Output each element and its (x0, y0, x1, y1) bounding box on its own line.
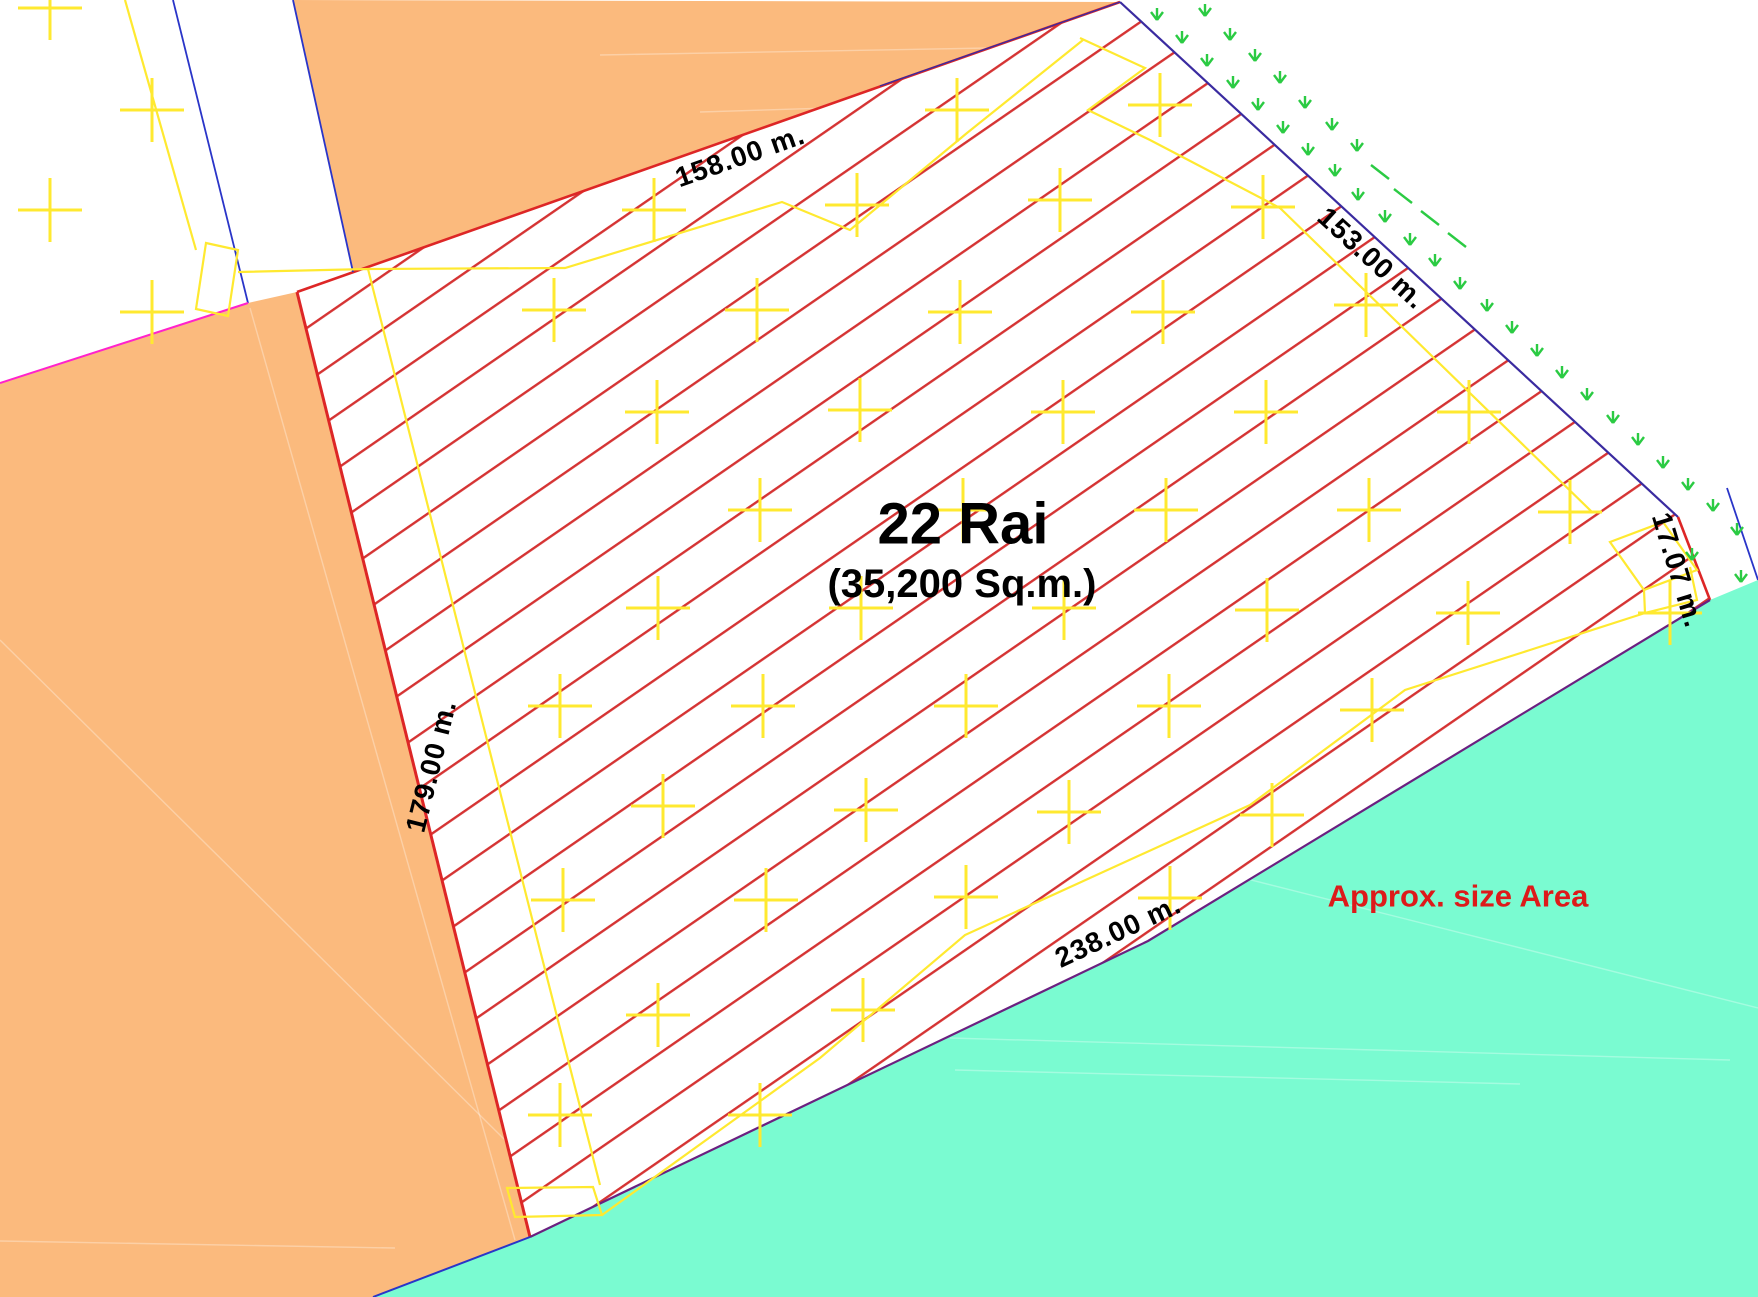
approx-size-note: Approx. size Area (1328, 879, 1589, 914)
plot-area-subtitle: (35,200 Sq.m.) (827, 562, 1096, 606)
right-edge-boundary (1727, 488, 1758, 580)
survey-map: 158.00 m. 153.00 m. 17.07 m. 179.00 m. 2… (0, 0, 1758, 1297)
survey-map-page: 158.00 m. 153.00 m. 17.07 m. 179.00 m. 2… (0, 0, 1758, 1297)
plot-area-title: 22 Rai (878, 492, 1049, 557)
